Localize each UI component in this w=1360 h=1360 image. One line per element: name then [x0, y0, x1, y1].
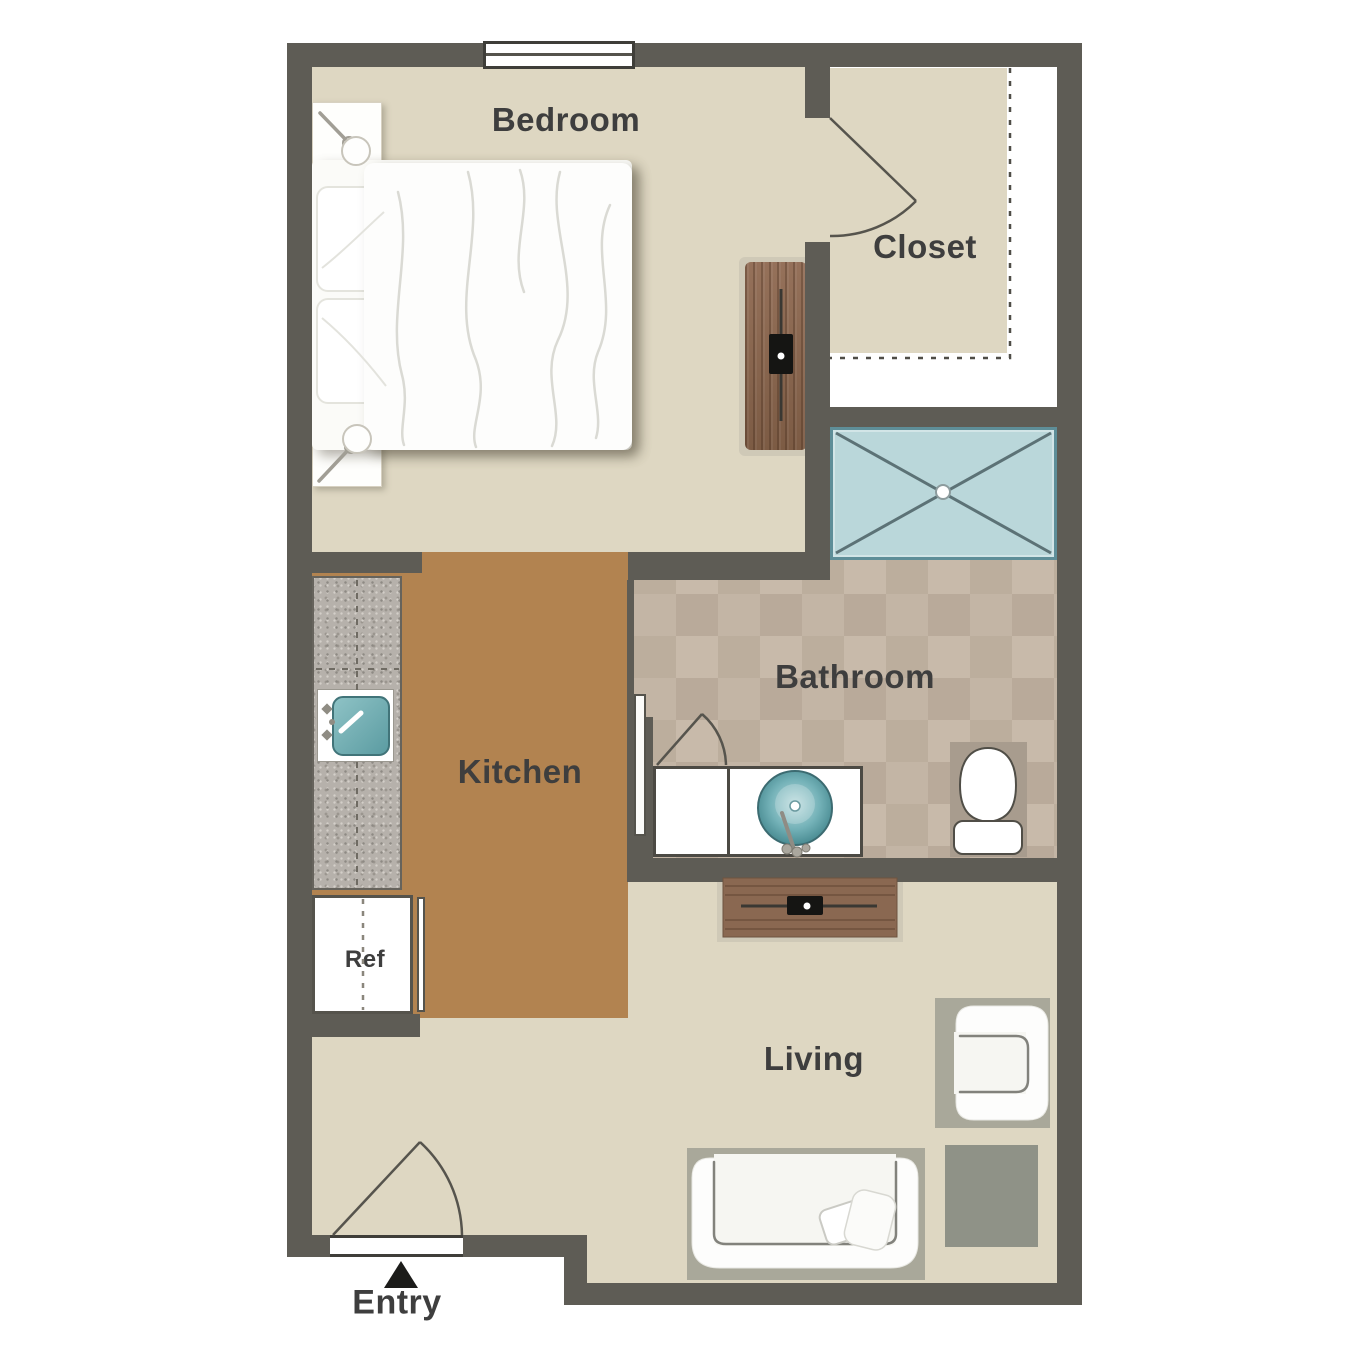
wall-right — [1057, 43, 1082, 1305]
floor-plan: Bedroom Closet Bathroom Kitchen Living E… — [0, 0, 1360, 1360]
closet-floor — [830, 68, 1007, 353]
dresser — [745, 262, 807, 450]
bathroom-label: Bathroom — [775, 658, 935, 696]
vanity — [653, 766, 863, 857]
wall-kitchen-stub — [303, 1014, 420, 1037]
bedroom-label: Bedroom — [492, 101, 640, 139]
console-pad — [717, 878, 903, 942]
wall-closet-divider-upper — [805, 43, 830, 118]
entry-door-sill — [330, 1235, 463, 1257]
side-table — [945, 1145, 1038, 1247]
window-pane-line — [486, 53, 632, 56]
entry-label: Entry — [352, 1284, 441, 1323]
pocket-door — [634, 694, 646, 836]
refrigerator-door — [417, 897, 425, 1012]
entry-floor-step — [587, 1018, 628, 1283]
wall-bathroom-top — [628, 552, 830, 580]
wall-top — [287, 43, 1082, 67]
wall-bathroom-bottom — [627, 858, 1082, 882]
entry-floor — [312, 1018, 628, 1235]
kitchen-sink-base — [317, 689, 394, 762]
wall-left — [287, 43, 312, 1257]
refrigerator-label: Ref — [345, 946, 385, 974]
wall-bedroom-stub — [305, 552, 422, 573]
kitchen-label: Kitchen — [458, 753, 583, 791]
sofa-rug — [687, 1148, 925, 1280]
wall-bottom-right — [564, 1283, 1082, 1305]
closet-door-opening — [805, 118, 830, 242]
closet-label: Closet — [873, 228, 977, 266]
wall-closet-bottom — [805, 407, 1082, 427]
living-label: Living — [764, 1040, 864, 1078]
vanity-divider — [727, 769, 730, 854]
armchair-rug — [935, 998, 1050, 1128]
toilet-recess — [950, 742, 1027, 857]
duvet — [364, 163, 632, 450]
window — [483, 41, 635, 69]
shower — [830, 427, 1057, 560]
